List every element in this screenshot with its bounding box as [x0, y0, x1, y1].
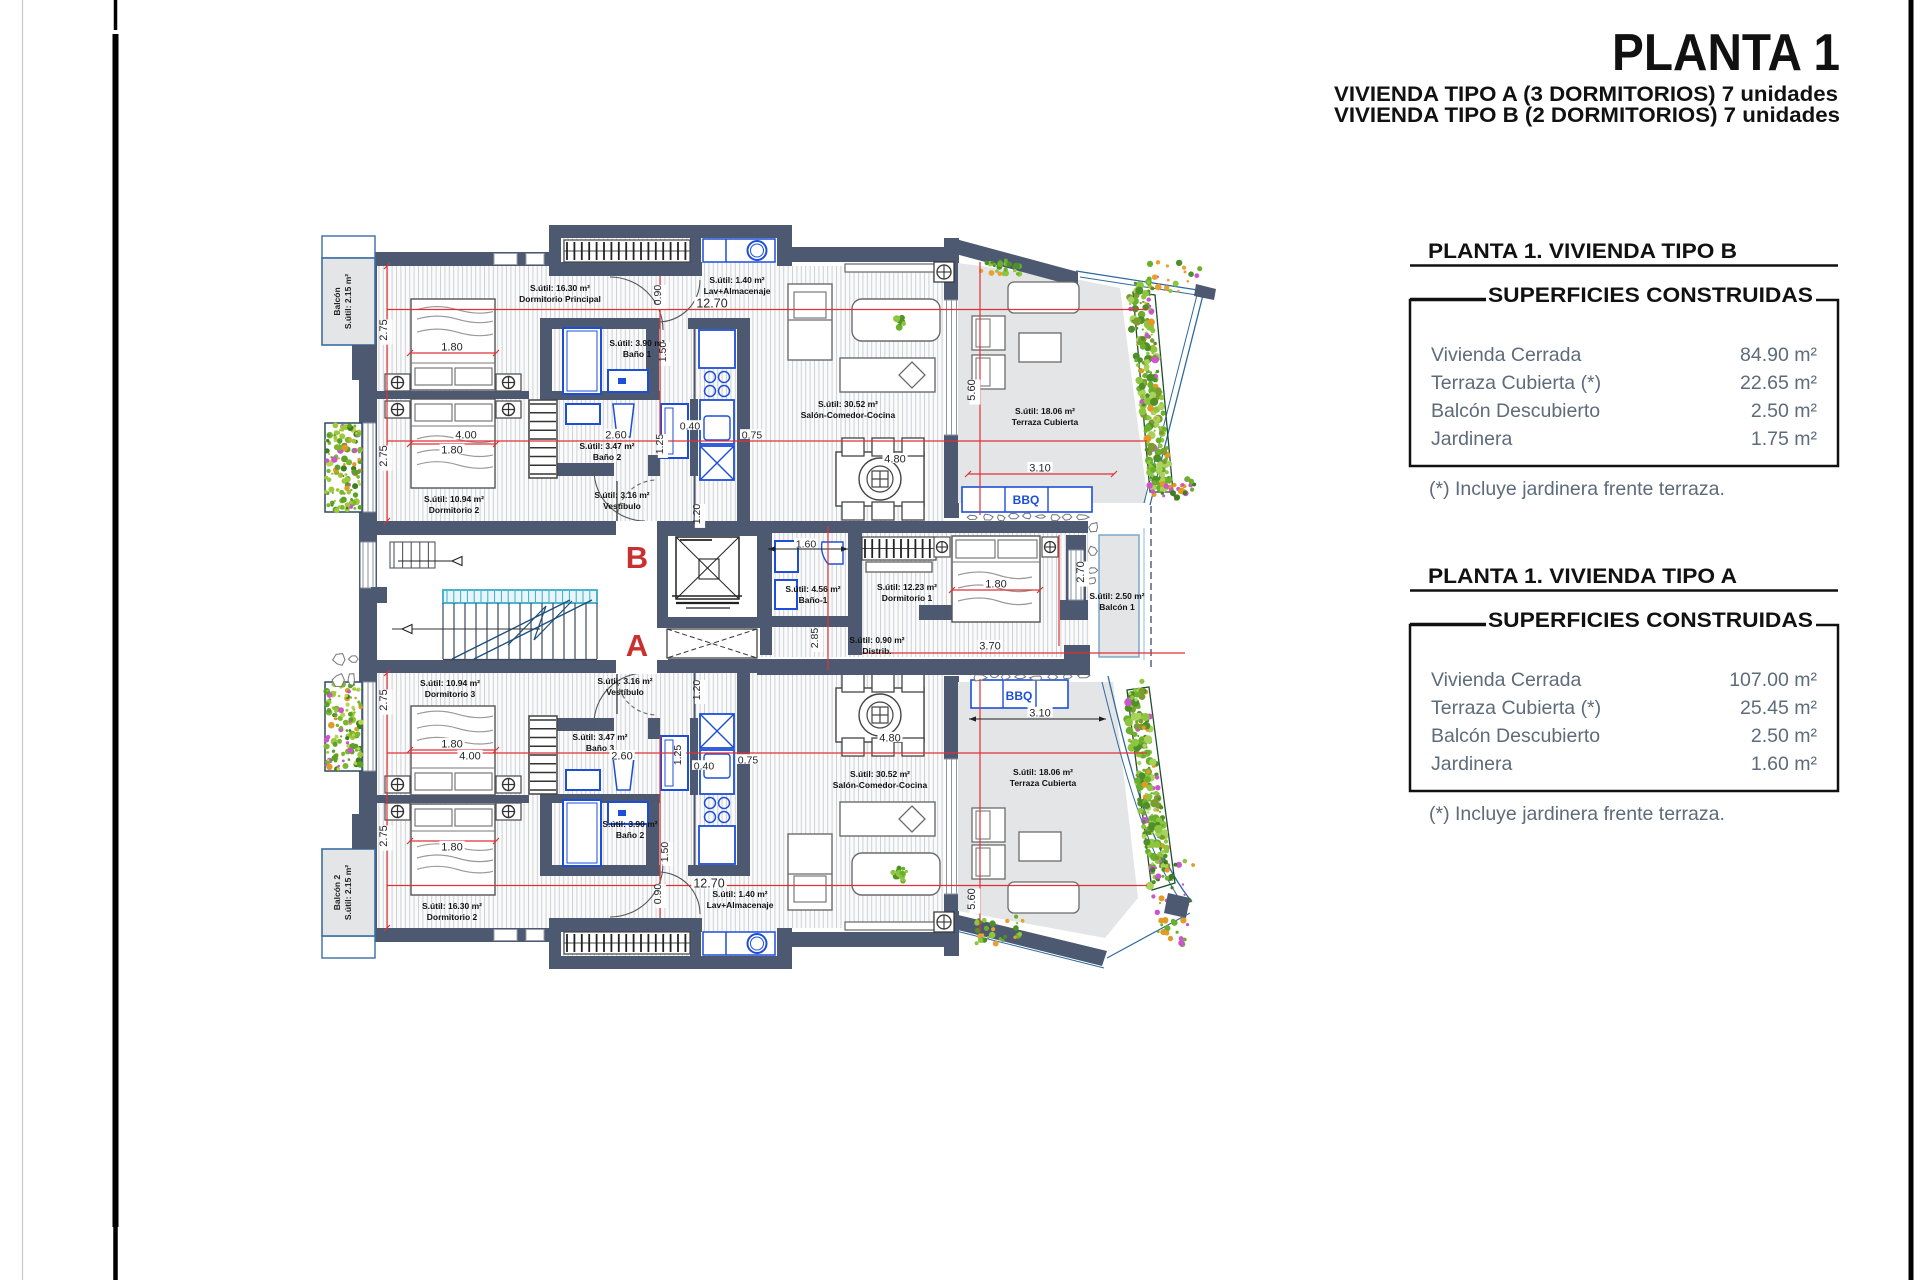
svg-text:Vivienda Cerrada: Vivienda Cerrada: [1431, 344, 1581, 366]
svg-text:1.60: 1.60: [796, 538, 817, 550]
svg-text:Dormitorio Principal: Dormitorio Principal: [519, 294, 601, 304]
svg-text:Balcón 1: Balcón 1: [1099, 602, 1135, 612]
svg-text:1.80: 1.80: [441, 341, 462, 353]
svg-text:4.00: 4.00: [459, 750, 480, 762]
svg-text:Terraza Cubierta: Terraza Cubierta: [1010, 778, 1077, 788]
svg-text:Vestíbulo: Vestíbulo: [603, 501, 641, 511]
svg-text:1.50: 1.50: [657, 342, 669, 363]
svg-text:Lav+Almacenaje: Lav+Almacenaje: [704, 286, 771, 296]
svg-text:2.75: 2.75: [378, 689, 390, 710]
svg-text:S.útil: 30.52 m²: S.útil: 30.52 m²: [850, 769, 910, 779]
svg-text:S.útil: 3.47 m²: S.útil: 3.47 m²: [572, 732, 627, 742]
svg-text:1.20: 1.20: [691, 680, 703, 701]
svg-text:Baño-1: Baño-1: [799, 595, 828, 605]
svg-text:S.útil: 1.40 m²: S.útil: 1.40 m²: [712, 889, 767, 899]
svg-text:1.60 m²: 1.60 m²: [1751, 753, 1818, 775]
svg-text:S.útil: 3.90 m²: S.útil: 3.90 m²: [602, 819, 657, 829]
svg-text:Terraza Cubierta (*): Terraza Cubierta (*): [1431, 372, 1601, 394]
svg-text:Dormitorio 2: Dormitorio 2: [429, 505, 480, 515]
svg-text:BBQ: BBQ: [1013, 493, 1040, 507]
svg-text:1.25: 1.25: [672, 745, 684, 766]
svg-text:Jardinera: Jardinera: [1431, 753, 1512, 775]
svg-text:2.85: 2.85: [809, 628, 821, 649]
svg-text:1.20: 1.20: [691, 504, 703, 525]
svg-text:S.útil: 18.06 m²: S.útil: 18.06 m²: [1013, 767, 1073, 777]
svg-text:2.50 m²: 2.50 m²: [1751, 400, 1818, 422]
svg-text:Salón-Comedor-Cocina: Salón-Comedor-Cocina: [833, 780, 928, 790]
svg-text:Salón-Comedor-Cocina: Salón-Comedor-Cocina: [801, 410, 896, 420]
svg-text:PLANTA 1. VIVIENDA TIPO A: PLANTA 1. VIVIENDA TIPO A: [1428, 565, 1737, 588]
svg-text:Baño 1: Baño 1: [623, 349, 652, 359]
svg-text:2.60: 2.60: [611, 750, 632, 762]
svg-text:S.útil: 30.52 m²: S.útil: 30.52 m²: [818, 399, 878, 409]
svg-text:12.70: 12.70: [696, 297, 727, 311]
svg-text:0.75: 0.75: [738, 754, 759, 766]
svg-text:2.70: 2.70: [1075, 561, 1087, 582]
svg-text:Dormitorio 1: Dormitorio 1: [882, 593, 933, 603]
svg-text:S.útil: 10.94 m²: S.útil: 10.94 m²: [424, 494, 484, 504]
svg-text:(*) Incluye jardinera frente t: (*) Incluye jardinera frente terraza.: [1429, 803, 1725, 825]
svg-text:Balcón 2: Balcón 2: [332, 875, 342, 911]
svg-text:1.80: 1.80: [985, 578, 1006, 590]
svg-text:2.75: 2.75: [378, 319, 390, 340]
svg-text:1.80: 1.80: [441, 444, 462, 456]
svg-text:Distrib.: Distrib.: [862, 646, 891, 656]
svg-text:BBQ: BBQ: [1006, 689, 1033, 703]
svg-text:S.útil: 2.15 m²: S.útil: 2.15 m²: [343, 865, 353, 920]
svg-text:2.60: 2.60: [605, 429, 626, 441]
svg-text:PLANTA 1: PLANTA 1: [1612, 24, 1840, 82]
svg-text:Baño 2: Baño 2: [593, 452, 622, 462]
svg-text:107.00 m²: 107.00 m²: [1729, 669, 1817, 691]
svg-text:S.útil: 18.06 m²: S.útil: 18.06 m²: [1015, 406, 1075, 416]
svg-text:1.25: 1.25: [654, 434, 666, 455]
svg-text:Vestíbulo: Vestíbulo: [606, 687, 644, 697]
svg-text:A: A: [626, 628, 648, 663]
svg-text:Lav+Almacenaje: Lav+Almacenaje: [707, 900, 774, 910]
svg-text:S.útil: 1.40 m²: S.útil: 1.40 m²: [709, 275, 764, 285]
svg-text:1.80: 1.80: [441, 841, 462, 853]
svg-text:4.00: 4.00: [455, 429, 476, 441]
svg-text:2.75: 2.75: [378, 825, 390, 846]
svg-text:12.70: 12.70: [693, 877, 724, 891]
svg-text:Dormitorio 2: Dormitorio 2: [427, 912, 478, 922]
svg-text:0.40: 0.40: [680, 420, 701, 432]
svg-text:Dormitorio 3: Dormitorio 3: [425, 689, 476, 699]
svg-text:4.80: 4.80: [879, 732, 900, 744]
svg-text:25.45 m²: 25.45 m²: [1740, 697, 1817, 719]
svg-text:3.70: 3.70: [979, 640, 1000, 652]
svg-text:SUPERFICIES CONSTRUIDAS: SUPERFICIES CONSTRUIDAS: [1488, 608, 1813, 632]
svg-text:0.90: 0.90: [652, 884, 664, 905]
svg-text:0.40: 0.40: [694, 760, 715, 772]
svg-text:S.útil: 10.94 m²: S.útil: 10.94 m²: [420, 678, 480, 688]
svg-text:B: B: [626, 540, 648, 575]
svg-text:SUPERFICIES CONSTRUIDAS: SUPERFICIES CONSTRUIDAS: [1488, 283, 1813, 307]
svg-text:5.60: 5.60: [966, 888, 978, 909]
svg-text:S.útil: 3.47 m²: S.útil: 3.47 m²: [579, 441, 634, 451]
svg-text:(*) Incluye jardinera frente t: (*) Incluye jardinera frente terraza.: [1429, 478, 1725, 500]
svg-text:4.80: 4.80: [884, 453, 905, 465]
svg-text:1.75 m²: 1.75 m²: [1751, 428, 1818, 450]
svg-text:2.50 m²: 2.50 m²: [1751, 725, 1818, 747]
svg-text:PLANTA 1. VIVIENDA TIPO B: PLANTA 1. VIVIENDA TIPO B: [1428, 240, 1737, 263]
svg-text:Jardinera: Jardinera: [1431, 428, 1512, 450]
svg-text:S.útil: 2.50 m²: S.útil: 2.50 m²: [1089, 591, 1144, 601]
svg-text:Vivienda Cerrada: Vivienda Cerrada: [1431, 669, 1581, 691]
svg-text:Terraza Cubierta (*): Terraza Cubierta (*): [1431, 697, 1601, 719]
svg-text:S.útil: 3.16 m²: S.útil: 3.16 m²: [594, 490, 649, 500]
svg-text:S.útil: 16.30 m²: S.útil: 16.30 m²: [422, 901, 482, 911]
svg-text:Terraza Cubierta: Terraza Cubierta: [1012, 417, 1079, 427]
svg-text:S.útil: 16.30 m²: S.útil: 16.30 m²: [530, 283, 590, 293]
svg-text:S.útil: 12.23 m²: S.útil: 12.23 m²: [877, 582, 937, 592]
svg-text:S.útil: 3.16 m²: S.útil: 3.16 m²: [597, 676, 652, 686]
svg-text:S.útil: 2.15 m²: S.útil: 2.15 m²: [343, 274, 353, 329]
svg-text:84.90 m²: 84.90 m²: [1740, 344, 1817, 366]
svg-text:5.60: 5.60: [966, 379, 978, 400]
svg-text:Balcón Descubierto: Balcón Descubierto: [1431, 400, 1600, 422]
svg-text:Balcón Descubierto: Balcón Descubierto: [1431, 725, 1600, 747]
svg-text:0.75: 0.75: [742, 429, 763, 441]
svg-text:1.50: 1.50: [659, 842, 671, 863]
svg-text:S.útil: 4.56 m²: S.útil: 4.56 m²: [785, 584, 840, 594]
svg-text:0.90: 0.90: [652, 285, 664, 306]
svg-text:1.80: 1.80: [441, 738, 462, 750]
svg-text:S.útil: 0.90 m²: S.útil: 0.90 m²: [849, 635, 904, 645]
svg-text:3.10: 3.10: [1029, 707, 1050, 719]
svg-text:Baño 2: Baño 2: [616, 830, 645, 840]
svg-text:Balcón: Balcón: [332, 287, 342, 315]
svg-text:3.10: 3.10: [1029, 462, 1050, 474]
svg-text:2.75: 2.75: [378, 445, 390, 466]
svg-text:VIVIENDA TIPO B (2 DORMITORIOS: VIVIENDA TIPO B (2 DORMITORIOS) 7 unidad…: [1334, 103, 1840, 127]
svg-text:22.65 m²: 22.65 m²: [1740, 372, 1817, 394]
